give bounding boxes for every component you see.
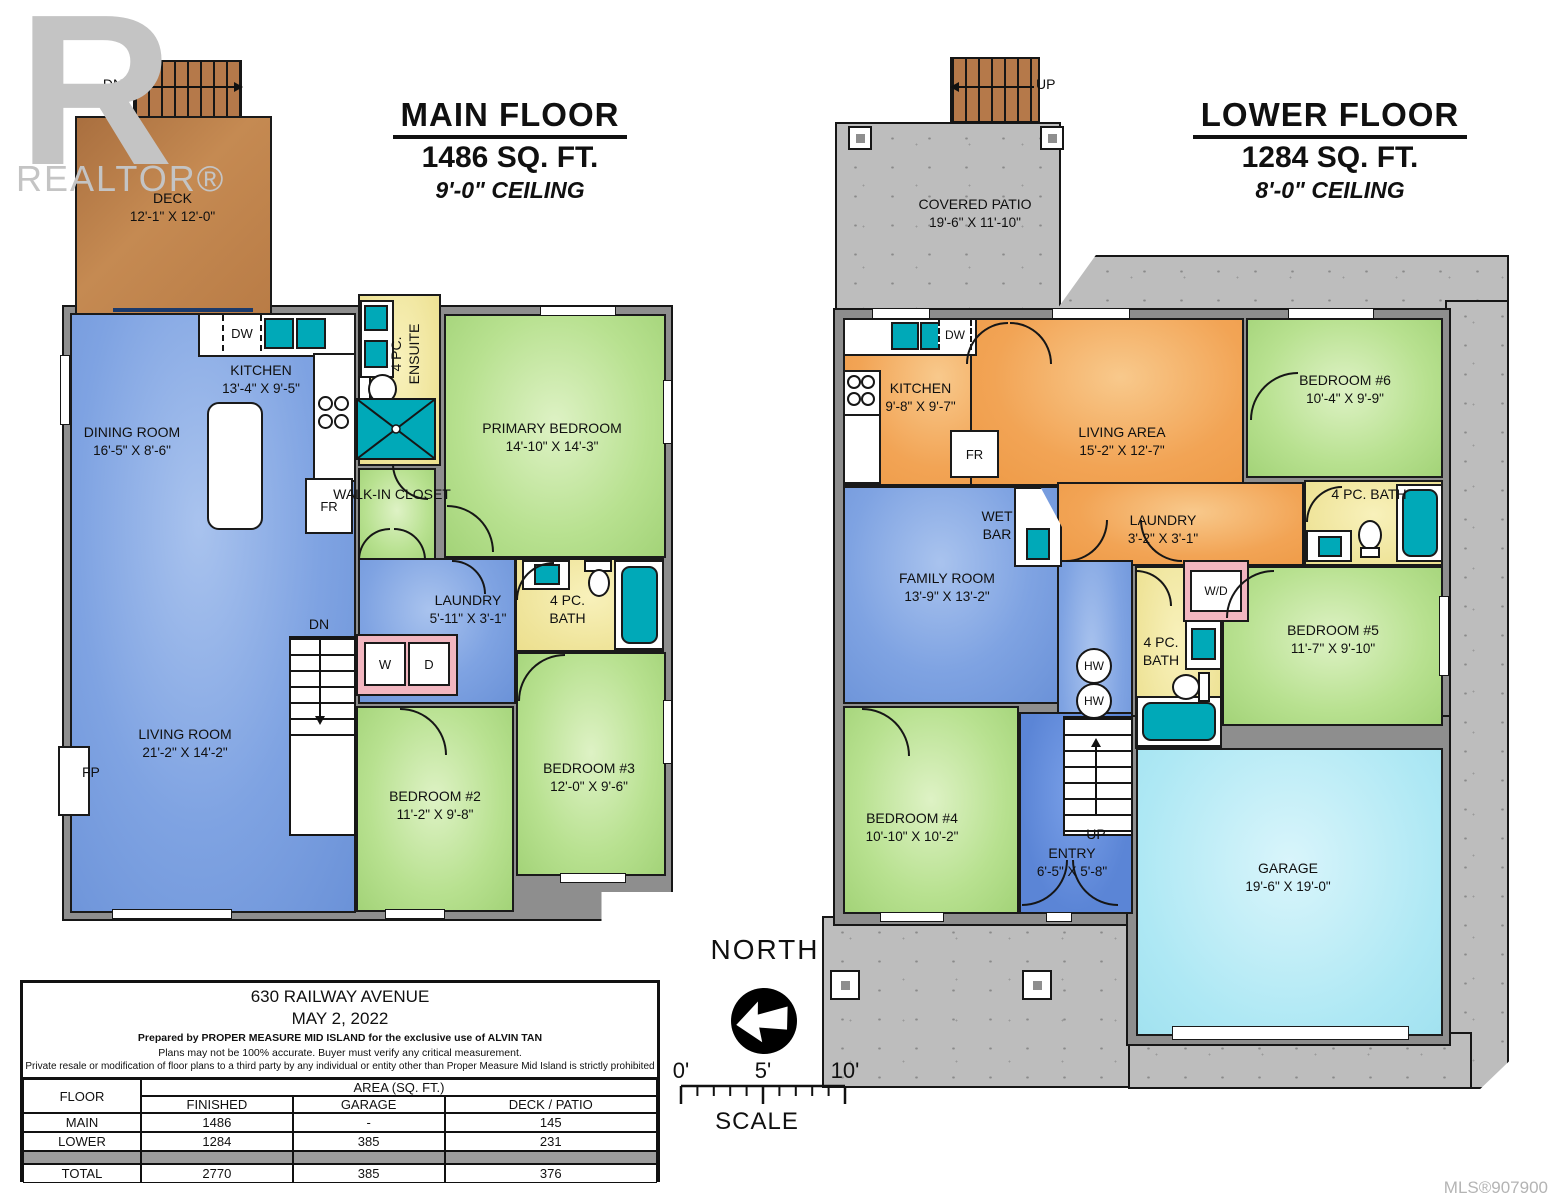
- tick-text: 10': [831, 1058, 860, 1083]
- window: [385, 909, 445, 919]
- table-header-floor: FLOOR: [23, 1079, 141, 1113]
- window: [872, 308, 930, 319]
- dishwasher-main: DW: [222, 315, 262, 351]
- table-cell: 2770: [141, 1164, 293, 1183]
- room-dims: 21'-2" X 14'-2": [95, 744, 275, 761]
- stove-burner: [318, 396, 333, 411]
- room-dims: 15'-2" X 12'-7": [1042, 442, 1202, 459]
- lower-floor-area: 1284 SQ. FT.: [1190, 141, 1470, 175]
- kitchen-island: [207, 402, 263, 530]
- table-cell: 231: [445, 1132, 657, 1151]
- table-cell: 385: [293, 1132, 445, 1151]
- table-cell: 385: [293, 1164, 445, 1183]
- patio-stairs-up-label: UP: [1036, 76, 1072, 94]
- table-cell: LOWER: [23, 1132, 141, 1151]
- ensuite-label: 4 PC. ENSUITE: [388, 319, 432, 389]
- patio-post: [1022, 970, 1052, 1000]
- concrete-bottom-strip: [822, 916, 1146, 1088]
- window: [1288, 308, 1374, 319]
- primary-bedroom-label: PRIMARY BEDROOM 14'-10" X 14'-3": [452, 420, 652, 455]
- main-stairs-arrowhead: [315, 716, 325, 725]
- main-bath-tub: [621, 566, 658, 644]
- bath-mid-toilet-bowl: [1172, 674, 1200, 700]
- scale-tick-10: 10': [823, 1058, 867, 1084]
- tick-text: 5': [755, 1058, 771, 1083]
- table-header-garage: GARAGE: [293, 1096, 445, 1113]
- hw-text: HW: [1084, 659, 1104, 673]
- fridge-lower: FR: [950, 430, 999, 478]
- table-header-deck: DECK / PATIO: [445, 1096, 657, 1113]
- room-name: WET BAR: [966, 508, 1028, 544]
- window: [663, 380, 672, 444]
- bath-right-toilet-tank: [1360, 547, 1380, 558]
- lower-stairs-up-label: UP: [1076, 826, 1116, 844]
- area-table: FLOOR AREA (SQ. FT.) FINISHED GARAGE DEC…: [23, 1077, 657, 1183]
- table-cell: 145: [445, 1113, 657, 1132]
- room-name: BEDROOM #6: [1265, 372, 1425, 390]
- bedroom2-label: BEDROOM #2 11'-2" X 9'-8": [360, 788, 510, 823]
- resale-line: Private resale or modification of floor …: [23, 1061, 657, 1072]
- room-name: BEDROOM #4: [832, 810, 992, 828]
- bath-right-label: 4 PC. BATH: [1330, 486, 1408, 504]
- table-spacer-cell: [445, 1151, 657, 1164]
- main-stairs-dn-label: DN: [299, 616, 339, 634]
- scale-tick-0: 0': [661, 1058, 701, 1084]
- patio-post: [848, 126, 872, 150]
- kitchen-label: KITCHEN 13'-4" X 9'-5": [196, 362, 326, 397]
- garage-door-opening: [1172, 1026, 1409, 1040]
- accuracy-line: Plans may not be 100% accurate. Buyer mu…: [23, 1047, 657, 1059]
- stove-burner: [318, 414, 333, 429]
- room-name: 4 PC. BATH: [1124, 634, 1198, 670]
- room-dims: 19'-6" X 11'-10": [880, 214, 1070, 231]
- patio-stairs-line: [958, 86, 1034, 88]
- room-dims: 12'-0" X 9'-6": [514, 778, 664, 795]
- living-room-label: LIVING ROOM 21'-2" X 14'-2": [95, 726, 275, 761]
- window: [1439, 596, 1449, 676]
- up-text: UP: [1036, 76, 1055, 92]
- dryer: D: [408, 642, 450, 686]
- patio-post-core: [841, 981, 850, 990]
- room-name: WALK-IN CLOSET: [332, 486, 452, 504]
- scale-tick-5: 5': [743, 1058, 783, 1084]
- table-spacer-cell: [293, 1151, 445, 1164]
- room-name: LAUNDRY: [1108, 512, 1218, 530]
- lower-kitchen-sink-1: [891, 322, 919, 350]
- room-name: ENTRY: [1012, 845, 1132, 863]
- table-header-area: AREA (SQ. FT.): [141, 1079, 657, 1096]
- room-dims: 16'-5" X 8'-6": [57, 442, 207, 459]
- lower-kitchen-label: KITCHEN 9'-8" X 9'-7": [858, 380, 983, 415]
- scale-ruler: [678, 1084, 848, 1110]
- table-cell: MAIN: [23, 1113, 141, 1132]
- room-dims: 6'-5" X 5'-8": [1012, 863, 1132, 880]
- patio-stairs-arrowhead: [950, 82, 959, 92]
- table-cell: TOTAL: [23, 1164, 141, 1183]
- room-dims: 10'-4" X 9'-9": [1265, 390, 1425, 407]
- window: [112, 909, 232, 919]
- lower-floor-ceiling: 8'-0" CEILING: [1190, 177, 1470, 204]
- room-dims: 19'-6" X 19'-0": [1208, 878, 1368, 895]
- room-dims: 9'-8" X 9'-7": [858, 398, 983, 415]
- bath-mid-toilet-tank: [1198, 672, 1210, 702]
- window: [1046, 912, 1072, 922]
- bath-right-toilet-bowl: [1358, 520, 1382, 550]
- washer-text: W: [379, 657, 391, 672]
- window: [880, 912, 944, 922]
- lower-floor-title: LOWER FLOOR: [1193, 96, 1467, 139]
- room-name: PRIMARY BEDROOM: [452, 420, 652, 438]
- lower-laundry-label: LAUNDRY 3'-2" X 3'-1": [1108, 512, 1218, 547]
- room-name: DINING ROOM: [57, 424, 207, 442]
- concrete-right-strip: [1445, 300, 1509, 1089]
- window: [663, 700, 672, 764]
- room-name: LAUNDRY: [413, 592, 523, 610]
- walkin-closet-label: WALK-IN CLOSET: [332, 486, 452, 504]
- garage-label: GARAGE 19'-6" X 19'-0": [1208, 860, 1368, 895]
- room-name: 4 PC. BATH: [530, 592, 605, 628]
- main-bath-label: 4 PC. BATH: [530, 592, 605, 628]
- info-table-box: 630 RAILWAY AVENUE MAY 2, 2022 Prepared …: [20, 980, 660, 1182]
- wet-bar-label: WET BAR: [966, 508, 1028, 544]
- room-name: BEDROOM #5: [1253, 622, 1413, 640]
- window: [1052, 308, 1130, 319]
- dw-text: DW: [945, 328, 965, 342]
- table-header-finished: FINISHED: [141, 1096, 293, 1113]
- mls-number: MLS®907900: [1370, 1178, 1548, 1198]
- dining-room-label: DINING ROOM 16'-5" X 8'-6": [57, 424, 207, 459]
- family-room-label: FAMILY ROOM 13'-9" X 13'-2": [867, 570, 1027, 605]
- main-stairs-line: [319, 640, 321, 718]
- realtor-watermark-text: REALTOR®: [16, 158, 225, 200]
- patio-post-core: [856, 134, 865, 143]
- bedroom5-label: BEDROOM #5 11'-7" X 9'-10": [1253, 622, 1413, 657]
- table-cell: -: [293, 1113, 445, 1132]
- room-dims: 5'-11" X 3'-1": [413, 610, 523, 627]
- north-compass-icon: [729, 986, 799, 1056]
- room-dims: 13'-9" X 13'-2": [867, 588, 1027, 605]
- laundry-label: LAUNDRY 5'-11" X 3'-1": [413, 592, 523, 627]
- north-label: NORTH: [700, 934, 830, 966]
- room-name: 4 PC. BATH: [1330, 486, 1408, 504]
- table-cell: 1486: [141, 1113, 293, 1132]
- lower-kitchen-counter-left: [843, 414, 881, 484]
- patio-post-core: [1033, 981, 1042, 990]
- room-dims: 13'-4" X 9'-5": [196, 380, 326, 397]
- up-text: UP: [1086, 826, 1105, 842]
- kitchen-sink-1: [264, 318, 294, 349]
- ensuite-shower: [356, 398, 436, 460]
- room-dims: 11'-7" X 9'-10": [1253, 640, 1413, 657]
- floor-plan-page: DN DECK 12'-1" X 12'-0" MAIN FLOOR 1486 …: [0, 0, 1553, 1200]
- fireplace-label: FP: [82, 764, 116, 782]
- ensuite-sink-1: [364, 305, 388, 331]
- table-spacer-cell: [141, 1151, 293, 1164]
- main-floor-title-block: MAIN FLOOR 1486 SQ. FT. 9'-0" CEILING: [370, 96, 650, 204]
- tick-text: 0': [673, 1058, 689, 1083]
- dw-text: DW: [231, 326, 253, 341]
- entry-label: ENTRY 6'-5" X 5'-8": [1012, 845, 1132, 880]
- bath-mid-tub: [1142, 702, 1216, 741]
- room-name: KITCHEN: [196, 362, 326, 380]
- room-dims: 14'-10" X 14'-3": [452, 438, 652, 455]
- washer: W: [364, 642, 406, 686]
- room-name: KITCHEN: [858, 380, 983, 398]
- lower-stairs-arrowhead: [1091, 738, 1101, 747]
- window: [560, 873, 626, 883]
- scale-label: SCALE: [692, 1108, 822, 1136]
- property-address: 630 RAILWAY AVENUE: [23, 987, 657, 1007]
- room-dims: 10'-10" X 10'-2": [832, 828, 992, 845]
- hot-water-tank-2: HW: [1076, 683, 1112, 719]
- bedroom3-label: BEDROOM #3 12'-0" X 9'-6": [514, 760, 664, 795]
- hw-text: HW: [1084, 694, 1104, 708]
- main-floor-ceiling: 9'-0" CEILING: [370, 177, 650, 204]
- room-name: FAMILY ROOM: [867, 570, 1027, 588]
- lower-floor-title-block: LOWER FLOOR 1284 SQ. FT. 8'-0" CEILING: [1190, 96, 1470, 204]
- plan-date: MAY 2, 2022: [23, 1009, 657, 1029]
- table-spacer-cell: [23, 1151, 141, 1164]
- bath-mid-label: 4 PC. BATH: [1124, 634, 1198, 670]
- main-floor-title: MAIN FLOOR: [393, 96, 628, 139]
- room-name: BEDROOM #2: [360, 788, 510, 806]
- room-name: 4 PC. ENSUITE: [388, 324, 422, 385]
- window: [60, 355, 70, 425]
- patio-post: [830, 970, 860, 1000]
- window: [540, 306, 616, 316]
- fr-text: FR: [966, 447, 983, 462]
- main-floor-area: 1486 SQ. FT.: [370, 141, 650, 175]
- dryer-text: D: [424, 657, 433, 672]
- room-dims: 3'-2" X 3'-1": [1108, 530, 1218, 547]
- patio-stairs-up: [950, 57, 1040, 123]
- stove-burner: [334, 414, 349, 429]
- fp-text: FP: [82, 764, 100, 780]
- patio-post-core: [1048, 134, 1057, 143]
- living-area-label: LIVING AREA 15'-2" X 12'-7": [1042, 424, 1202, 459]
- stove-burner: [334, 396, 349, 411]
- wd-text: W/D: [1204, 584, 1227, 598]
- table-cell: 376: [445, 1164, 657, 1183]
- ensuite-sink-2: [364, 340, 388, 368]
- dishwasher-lower: DW: [938, 320, 972, 350]
- lower-stairs-up: [1063, 716, 1133, 836]
- room-name: COVERED PATIO: [880, 196, 1070, 214]
- bedroom4-label: BEDROOM #4 10'-10" X 10'-2": [832, 810, 992, 845]
- lower-stairs-line: [1095, 744, 1097, 814]
- table-cell: 1284: [141, 1132, 293, 1151]
- covered-patio-label: COVERED PATIO 19'-6" X 11'-10": [880, 196, 1070, 231]
- kitchen-sink-2: [296, 318, 326, 349]
- hot-water-tank-1: HW: [1076, 648, 1112, 684]
- main-stairs-down: [289, 636, 356, 836]
- deck-stairs-arrowhead: [234, 82, 243, 92]
- prepared-by-line: Prepared by PROPER MEASURE MID ISLAND fo…: [23, 1032, 657, 1044]
- room-dims: 11'-2" X 9'-8": [360, 806, 510, 823]
- dn-text: DN: [309, 616, 329, 632]
- bedroom6-label: BEDROOM #6 10'-4" X 9'-9": [1265, 372, 1425, 407]
- room-name: LIVING AREA: [1042, 424, 1202, 442]
- wet-bar-sink: [1026, 528, 1050, 560]
- room-name: GARAGE: [1208, 860, 1368, 878]
- patio-post: [1040, 126, 1064, 150]
- room-name: LIVING ROOM: [95, 726, 275, 744]
- room-name: BEDROOM #3: [514, 760, 664, 778]
- bath-right-sink: [1318, 536, 1342, 557]
- dining-sliding-door: [113, 308, 253, 312]
- room-dims: 12'-1" X 12'-0": [95, 208, 250, 225]
